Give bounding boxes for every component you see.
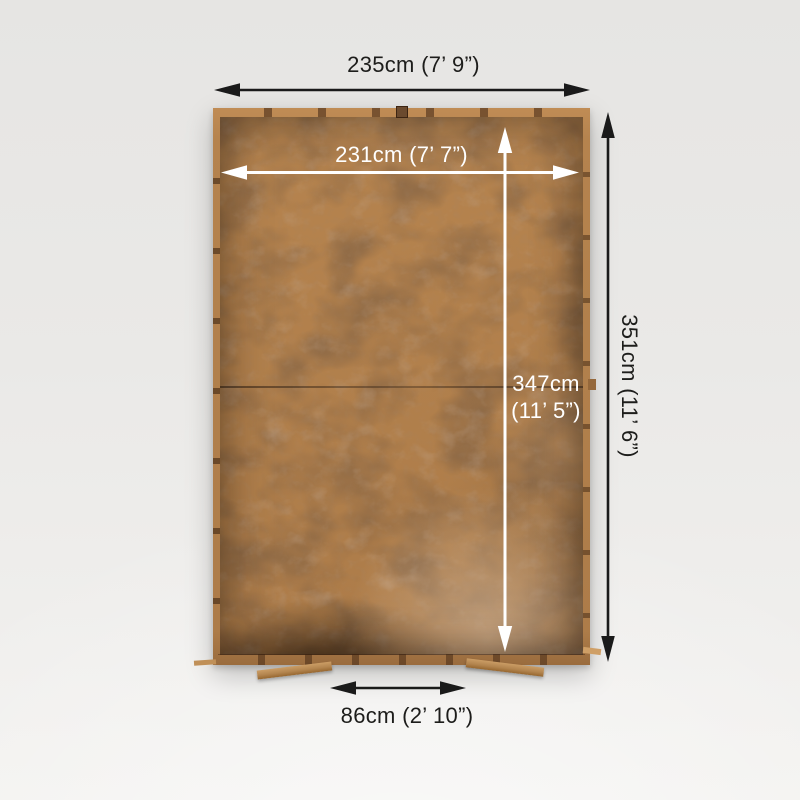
outer-width-label: 235cm (7’ 9”) [225, 52, 602, 78]
outer-depth-arrow [601, 112, 615, 662]
outer-width-arrow [214, 83, 590, 97]
side-frame-tab [588, 379, 596, 390]
outer-depth-label: 351cm (11’ 6”) [616, 314, 642, 458]
inner-depth-label-line1: 347cm [504, 370, 588, 397]
door-width-label: 86cm (2’ 10”) [307, 703, 507, 729]
door-width-arrow [330, 681, 466, 695]
wood-frame-left [213, 114, 220, 659]
wood-frame-bottom [218, 654, 585, 665]
inner-depth-label-line2: (11’ 5”) [504, 397, 588, 424]
roof-apex-notch [396, 106, 408, 118]
inner-depth-label: 347cm (11’ 5”) [504, 370, 588, 424]
inner-width-label: 231cm (7’ 7”) [213, 142, 590, 168]
product-dimension-diagram: 235cm (7’ 9”) 231cm (7’ 7”) 351cm (11’ 6… [0, 0, 800, 800]
